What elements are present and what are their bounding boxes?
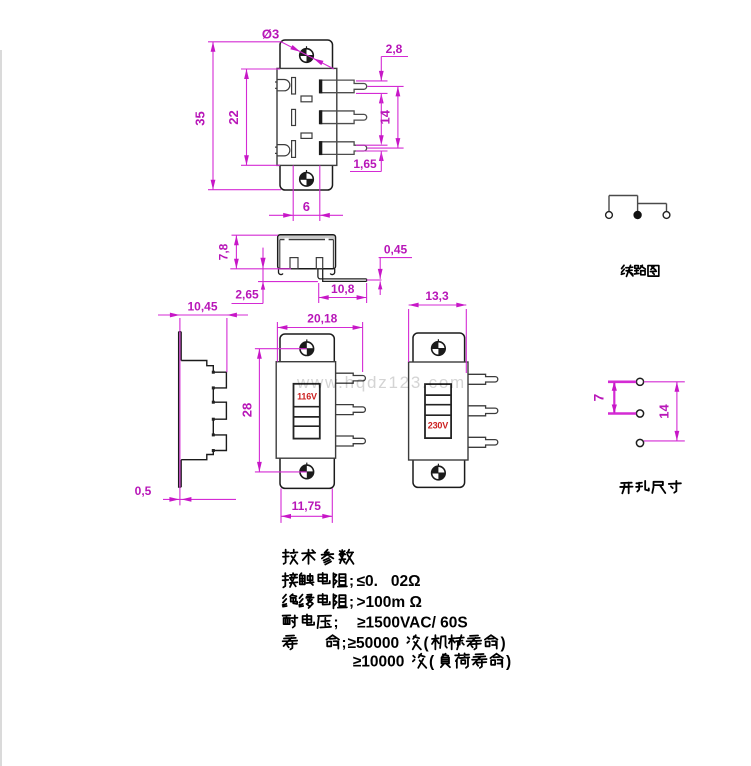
svg-text:;: ; xyxy=(349,594,354,611)
svg-text:;: ; xyxy=(334,614,339,631)
svg-text:13,3: 13,3 xyxy=(425,289,449,303)
svg-text:≥1500VAC/ 60S: ≥1500VAC/ 60S xyxy=(357,614,468,631)
svg-text:11,75: 11,75 xyxy=(292,499,322,513)
svg-text:≤0. 02Ω: ≤0. 02Ω xyxy=(357,573,421,590)
svg-text:≥10000: ≥10000 xyxy=(353,653,405,670)
svg-text:Ø3: Ø3 xyxy=(262,27,279,42)
svg-text:7: 7 xyxy=(591,393,607,401)
svg-text:): ) xyxy=(506,653,511,670)
svg-text:22: 22 xyxy=(226,110,241,124)
svg-text:): ) xyxy=(501,635,506,652)
svg-text:1,65: 1,65 xyxy=(353,157,377,171)
svg-text:6: 6 xyxy=(303,199,310,214)
svg-text:>100m Ω: >100m Ω xyxy=(357,594,422,611)
svg-text:116V: 116V xyxy=(297,392,317,402)
svg-text:230V: 230V xyxy=(428,420,448,430)
svg-text:(: ( xyxy=(424,635,430,652)
svg-text:20,18: 20,18 xyxy=(307,311,337,325)
svg-text:0,45: 0,45 xyxy=(384,243,408,257)
svg-text:;: ; xyxy=(349,573,354,590)
svg-text:(: ( xyxy=(429,653,435,670)
svg-text:2,8: 2,8 xyxy=(386,42,403,56)
svg-text:0,5: 0,5 xyxy=(135,484,152,498)
svg-text:10,8: 10,8 xyxy=(331,282,355,296)
svg-text:7,8: 7,8 xyxy=(217,243,231,260)
svg-text:14: 14 xyxy=(657,404,672,419)
svg-text:35: 35 xyxy=(193,111,208,125)
svg-text:≥50000: ≥50000 xyxy=(348,635,400,652)
svg-text:14: 14 xyxy=(378,109,393,124)
svg-text:;: ; xyxy=(342,635,347,652)
svg-text:2,65: 2,65 xyxy=(235,288,259,302)
svg-text:10,45: 10,45 xyxy=(187,300,217,314)
svg-text:28: 28 xyxy=(240,403,255,417)
